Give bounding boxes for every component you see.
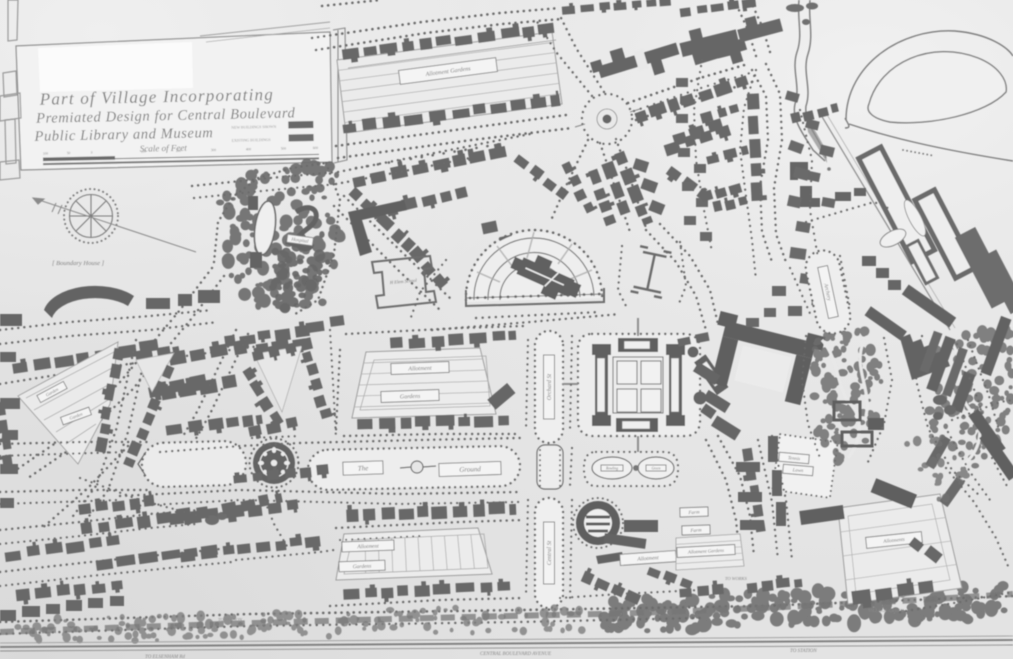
svg-text:50: 50: [67, 151, 71, 155]
svg-text:[ Boundary House ]: [ Boundary House ]: [52, 260, 105, 267]
svg-text:TO ELSENHAM Rd: TO ELSENHAM Rd: [145, 655, 185, 659]
svg-text:300: 300: [211, 148, 217, 152]
svg-text:Central St: Central St: [547, 540, 553, 565]
svg-text:Ground: Ground: [459, 465, 481, 474]
svg-text:500: 500: [281, 147, 287, 151]
svg-text:Allotment: Allotment: [356, 544, 379, 551]
svg-text:VILLAGE GREEN: VILLAGE GREEN: [868, 608, 904, 613]
svg-text:Allotment: Allotment: [407, 366, 432, 373]
svg-text:600: 600: [313, 146, 319, 150]
svg-text:Farm: Farm: [687, 511, 700, 516]
svg-text:100: 100: [43, 152, 49, 156]
svg-text:Bowling: Bowling: [606, 466, 618, 470]
svg-text:EXISTING BUILDINGS: EXISTING BUILDINGS: [232, 138, 271, 143]
svg-text:Gardens: Gardens: [400, 394, 421, 401]
svg-text:CENTRAL BOULEVARD AVENUE: CENTRAL BOULEVARD AVENUE: [480, 652, 551, 657]
svg-text:TO STATION: TO STATION: [790, 649, 817, 654]
svg-text:Green: Green: [652, 466, 661, 470]
svg-text:100: 100: [141, 150, 147, 154]
svg-text:Lawn: Lawn: [791, 468, 804, 474]
svg-text:400: 400: [246, 147, 252, 151]
svg-text:200: 200: [176, 149, 182, 153]
svg-text:Farm: Farm: [689, 529, 702, 534]
svg-text:TO WORKS: TO WORKS: [725, 576, 748, 581]
svg-text:TO STATION: TO STATION: [218, 617, 243, 622]
svg-text:Gardens: Gardens: [353, 564, 372, 571]
svg-text:Orchard St: Orchard St: [547, 373, 553, 400]
svg-text:The: The: [358, 464, 369, 472]
